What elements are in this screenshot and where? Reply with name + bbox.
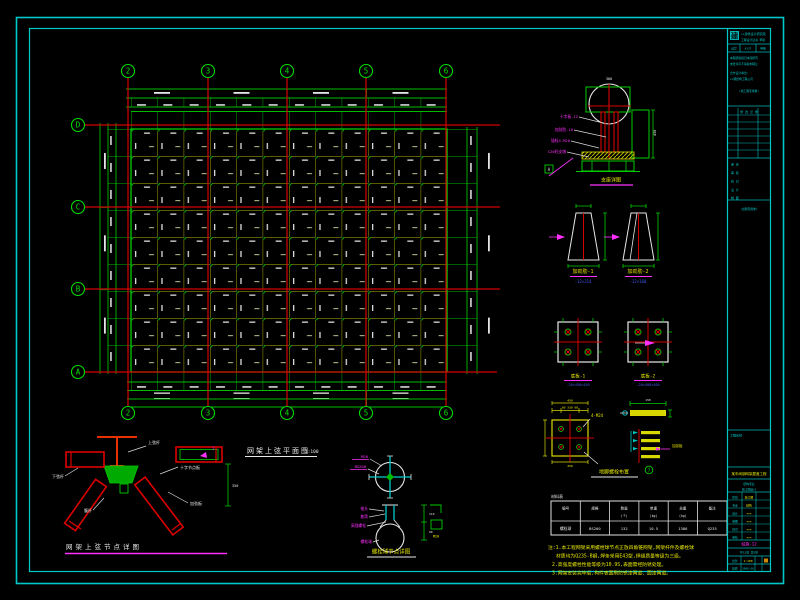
table-cell: 螺栓球 [560, 526, 572, 531]
detail-title: 加劲肋-1 [572, 268, 593, 275]
detail-subtitle: -20×450×450 [566, 383, 589, 387]
tb-sub: 施工图设计 [742, 488, 756, 492]
table-header: 编号 [562, 506, 570, 511]
axis-label: 3 [206, 67, 211, 76]
table-header: 单重 [650, 506, 658, 511]
cert-cell: 甲级 [760, 47, 766, 51]
stack-dim: 150 [645, 398, 651, 402]
drawing-number: 结施-12 [741, 541, 757, 547]
support-dim: 450 [653, 130, 657, 136]
space-frame-grid [131, 129, 447, 372]
project-name: 某车间钢网架屋盖工程 [732, 471, 767, 476]
table-header: 备注 [709, 506, 717, 511]
axis-label: 6 [444, 409, 449, 418]
tb-row-value: 施工图 [745, 496, 754, 500]
node-label: 下弦杆 [52, 473, 64, 479]
tb-info: (施工图专用章) [739, 89, 759, 93]
cert-cell: 证号 [731, 47, 737, 51]
support-label: 加劲肋-10 [555, 127, 574, 132]
node-label: 上弦杆 [148, 439, 160, 445]
stack-label: 加劲板 [672, 443, 683, 448]
detail-title: 底板-2 [641, 373, 656, 380]
tb-row-value: ××× [746, 536, 751, 540]
ball-dim: 110 [429, 512, 435, 516]
note-line: 3.网架安装完毕后,构件表面刷防锈漆两道、面漆两道。 [552, 570, 671, 577]
axis-label: 2 [126, 409, 131, 418]
note-line: 2.高强度螺栓性能等级为10.9S,表面需经防锈处理。 [552, 561, 666, 568]
ball-label: BS200 [355, 464, 367, 469]
tb-row-label: 专业 [732, 504, 738, 508]
tb-row-label: 阶段 [732, 496, 738, 500]
tb-row-value: ××× [746, 528, 751, 532]
plan-title-text: 网架上弦平面图 [247, 446, 310, 455]
detail-title: 支座详图 [601, 177, 621, 184]
note-line: 注:1.本工程网架采用螺栓球节点正放四角锥网架,网架杆件及螺栓球 [548, 544, 694, 551]
table-header: 规格 [591, 506, 599, 511]
tb-row-value: 结构 [746, 504, 752, 508]
tb-row-value: ××× [746, 520, 751, 524]
tb-info: 合作设计单位: [730, 71, 749, 75]
scale-label: 比例 [732, 559, 738, 563]
node-label: 腹杆 [84, 507, 92, 513]
date-label: 日期 [732, 567, 738, 571]
table-header-unit: (个) [621, 514, 628, 518]
ball-label: 高强螺栓 [351, 523, 366, 528]
table-header-unit: (kg) [679, 514, 687, 518]
bolt-mark: M20 [433, 535, 439, 539]
axis-label: 4 [285, 409, 290, 418]
tb-sub: 结构专业 [743, 482, 754, 486]
table-cell: 132 [621, 526, 628, 531]
tb-row-label: 审核 [732, 536, 738, 540]
sheet-count: 共12张 第5张 [740, 551, 758, 555]
table-cell: Q235 [708, 526, 717, 531]
anchor-dim-overall: 450 [567, 399, 573, 403]
table-cell: 10.5 [649, 526, 658, 531]
node-label: 加劲板 [190, 500, 202, 506]
logo-glyph: 建 [730, 31, 739, 41]
axis-label: 2 [126, 67, 131, 76]
plan-scale: 1:100 [305, 449, 319, 455]
axis-label: 4 [285, 67, 290, 76]
detail-subtitle: -12×214 [575, 279, 592, 284]
anchor-bolt-mark: 4-M24 [591, 413, 604, 418]
tb-row-label: 制图 [732, 520, 738, 524]
stamp-label: (出图专用章) [740, 207, 758, 211]
node-dim: 350 [232, 484, 238, 488]
support-label: C20砼支墩 [548, 149, 566, 154]
tb-row-value: ××× [746, 512, 751, 516]
table-header: 总重 [679, 506, 687, 511]
cad-drawing-canvas: 2 3 4 5 6 2 3 4 5 6 D C [0, 0, 800, 600]
table-header-unit: (kg) [650, 514, 658, 518]
detail-title: 网架上弦节点详图 [66, 542, 142, 551]
table-cell: 1386 [678, 526, 688, 531]
main-plan: 2 3 4 5 6 2 3 4 5 6 D C [72, 65, 501, 457]
anchor-dim-bottom: 450 [567, 464, 573, 468]
support-label: 十字板-12 [560, 114, 578, 119]
detail-title: 底板-1 [571, 373, 586, 380]
detail-number: 7 [648, 468, 651, 474]
ball-dim: 300 [606, 77, 612, 81]
axis-label: 3 [206, 409, 211, 418]
sign-row: 设 计 [731, 187, 739, 192]
detail-title: 螺栓球节点详图 [372, 548, 411, 556]
detail-title: 地脚螺栓布置 [599, 469, 629, 476]
table-caption: 材料表 [551, 493, 563, 499]
revision-header: 修 改 记 录 [740, 109, 757, 114]
axis-label: D [76, 121, 81, 130]
detail-subtitle: -12×160 [630, 279, 647, 284]
note-line: 材质均为Q235-B钢,焊条采用E43型,焊缝质量等级为三级。 [556, 553, 684, 560]
sign-row: 审 核 [731, 170, 739, 175]
sign-row: 制 图 [731, 195, 739, 200]
scale-value: 1:100 [743, 559, 752, 563]
axis-label: C [76, 203, 81, 212]
detail-subtitle: -20×400×400 [636, 383, 659, 387]
axis-label: 6 [444, 67, 449, 76]
node-label: 十字节点板 [180, 464, 200, 470]
axis-label: 5 [364, 409, 369, 418]
anchor-dim-top: 60 330 60 [562, 406, 578, 410]
company-cert: 工程设计证书 甲级 [741, 38, 765, 42]
axis-label: B [76, 285, 81, 294]
plan-title: 网架上弦平面图 1:100 [245, 446, 319, 457]
cert-cell: A137 [745, 47, 752, 51]
axis-label: A [76, 368, 81, 377]
sign-row: 校 对 [731, 179, 739, 184]
project-label: 工程名称 [730, 433, 742, 438]
tb-info: 未经许可不得复制转让 [730, 62, 758, 66]
company-name: ××建筑设计研究院 [741, 31, 766, 36]
date-value: 2008.06 [742, 567, 754, 571]
ball-label: M20 [361, 454, 369, 459]
stamp-mark [764, 559, 768, 563]
ball-dim: 60 [429, 530, 433, 534]
table-header: 数量 [621, 506, 629, 511]
tb-info: ××钢结构工程公司 [730, 77, 753, 81]
detail-title: 加劲肋-2 [627, 268, 648, 275]
support-label: 锚栓4-M20 [551, 138, 571, 143]
tb-info: 本图纸版权归本院所有 [730, 56, 758, 60]
tb-row-label: 校对 [732, 528, 738, 532]
axis-label: 5 [364, 67, 369, 76]
table-cell: BS200 [589, 526, 601, 531]
ball-label: 套筒 [360, 514, 368, 519]
sign-row: 审 定 [731, 162, 739, 167]
tb-row-label: 设计 [732, 512, 738, 516]
ball-label: 螺栓球 [361, 539, 373, 544]
ball-label: 锥头 [360, 506, 368, 511]
